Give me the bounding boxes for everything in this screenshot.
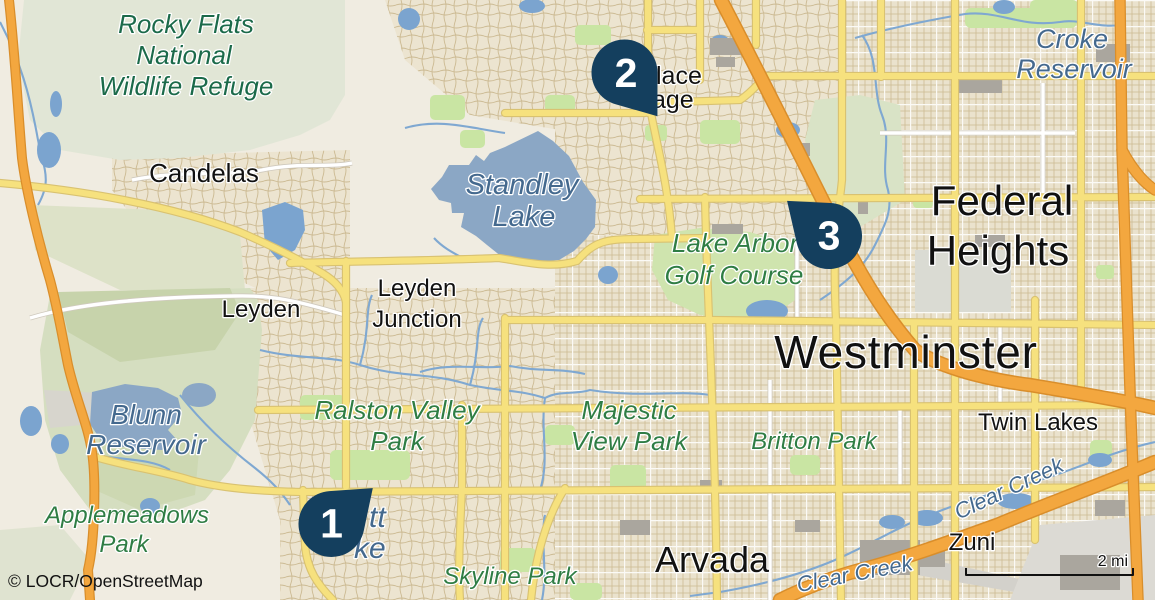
svg-text:Reservoir: Reservoir xyxy=(1016,54,1133,84)
svg-text:age: age xyxy=(652,86,694,114)
svg-text:Rocky Flats: Rocky Flats xyxy=(118,9,254,39)
svg-text:Wildlife Refuge: Wildlife Refuge xyxy=(99,71,274,101)
svg-text:Westminster: Westminster xyxy=(774,326,1038,378)
svg-text:2 mi: 2 mi xyxy=(1098,553,1128,570)
svg-text:View Park: View Park xyxy=(571,426,690,456)
svg-text:tt: tt xyxy=(369,501,387,534)
svg-text:Leyden: Leyden xyxy=(222,296,301,323)
svg-text:Blunn: Blunn xyxy=(110,399,182,430)
svg-text:Majestic: Majestic xyxy=(581,395,676,425)
svg-text:Twin Lakes: Twin Lakes xyxy=(978,409,1098,436)
svg-text:Ralston Valley: Ralston Valley xyxy=(314,395,481,425)
svg-text:Standley: Standley xyxy=(466,169,580,201)
svg-text:Golf Course: Golf Course xyxy=(665,260,804,290)
svg-text:Park: Park xyxy=(99,531,150,558)
svg-text:© LOCR/OpenStreetMap: © LOCR/OpenStreetMap xyxy=(8,571,203,591)
svg-text:Park: Park xyxy=(370,426,425,456)
svg-text:1: 1 xyxy=(320,501,343,547)
svg-text:Croke: Croke xyxy=(1036,24,1108,54)
svg-text:Heights: Heights xyxy=(927,227,1069,274)
svg-text:2: 2 xyxy=(615,50,638,96)
svg-text:Skyline Park: Skyline Park xyxy=(443,563,578,590)
svg-text:Leyden: Leyden xyxy=(378,275,457,302)
svg-text:Lake: Lake xyxy=(493,201,556,233)
svg-text:Applemeadows: Applemeadows xyxy=(43,502,209,529)
svg-text:Candelas: Candelas xyxy=(149,158,259,188)
svg-text:National: National xyxy=(136,40,233,70)
svg-text:Arvada: Arvada xyxy=(655,539,770,580)
svg-text:Junction: Junction xyxy=(372,306,461,333)
svg-text:Lake Arbor: Lake Arbor xyxy=(672,228,800,258)
svg-text:3: 3 xyxy=(818,213,841,259)
svg-text:Britton Park: Britton Park xyxy=(751,428,878,455)
svg-text:Zuni: Zuni xyxy=(949,529,996,556)
svg-text:Reservoir: Reservoir xyxy=(86,429,207,460)
svg-text:Federal: Federal xyxy=(931,177,1073,224)
